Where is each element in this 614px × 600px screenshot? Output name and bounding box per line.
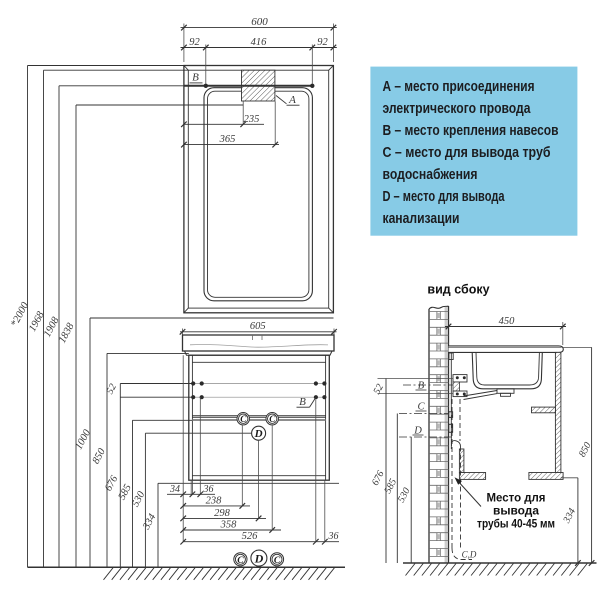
- svg-text:C,D: C,D: [462, 550, 477, 560]
- svg-text:334: 334: [561, 507, 578, 526]
- svg-text:C: C: [240, 414, 247, 424]
- svg-text:1838: 1838: [57, 321, 77, 345]
- svg-text:вид сбоку: вид сбоку: [427, 283, 489, 297]
- svg-text:B: B: [192, 72, 199, 84]
- svg-text:52: 52: [372, 382, 386, 396]
- svg-text:Место для: Место для: [487, 493, 546, 505]
- svg-text:298: 298: [214, 508, 231, 519]
- svg-text:вывода: вывода: [493, 506, 540, 518]
- svg-text:235: 235: [244, 114, 260, 125]
- svg-text:С – место для вывода труб: С – место для вывода труб: [383, 145, 551, 161]
- svg-text:D: D: [254, 428, 263, 440]
- svg-text:D: D: [254, 552, 264, 566]
- svg-text:530: 530: [396, 486, 413, 504]
- svg-text:C: C: [237, 556, 244, 566]
- svg-text:36: 36: [203, 484, 214, 495]
- svg-text:D – место для вывода: D – место для вывода: [383, 189, 506, 205]
- svg-text:365: 365: [219, 134, 236, 145]
- svg-text:92: 92: [317, 37, 328, 48]
- svg-text:92: 92: [189, 37, 200, 48]
- svg-text:водоснабжения: водоснабжения: [383, 167, 478, 183]
- svg-text:334: 334: [141, 512, 159, 533]
- svg-text:36: 36: [328, 531, 339, 542]
- svg-text:34: 34: [169, 484, 180, 495]
- svg-text:B: B: [299, 396, 306, 408]
- svg-text:*2000: *2000: [9, 300, 31, 329]
- svg-text:416: 416: [251, 37, 268, 48]
- svg-text:А – место присоединения: А – место присоединения: [383, 79, 535, 95]
- svg-text:C: C: [269, 414, 276, 424]
- svg-text:238: 238: [206, 495, 223, 506]
- svg-text:В – место крепления навесов: В – место крепления навесов: [383, 123, 559, 139]
- svg-text:C: C: [274, 556, 281, 566]
- svg-text:676: 676: [370, 469, 387, 487]
- svg-text:585: 585: [382, 477, 399, 495]
- svg-text:850: 850: [91, 446, 108, 466]
- svg-text:трубы 40-45 мм: трубы 40-45 мм: [477, 519, 555, 531]
- svg-text:A: A: [288, 94, 296, 106]
- svg-text:585: 585: [117, 483, 134, 502]
- svg-text:электрического провода: электрического провода: [383, 101, 532, 117]
- svg-text:526: 526: [242, 531, 259, 542]
- svg-text:676: 676: [103, 473, 120, 493]
- svg-text:канализации: канализации: [383, 211, 460, 227]
- svg-text:358: 358: [220, 520, 238, 531]
- svg-text:450: 450: [499, 316, 516, 327]
- svg-text:600: 600: [251, 16, 268, 28]
- svg-text:605: 605: [250, 321, 266, 332]
